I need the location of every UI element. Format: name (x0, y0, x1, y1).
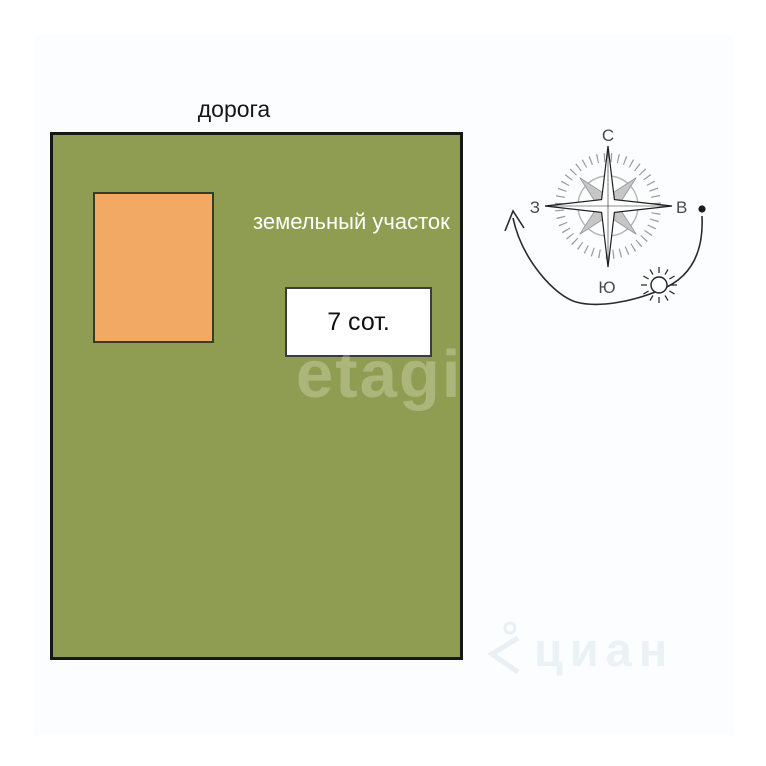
cian-watermark-text: циан (534, 626, 674, 673)
compass-label-west: З (530, 198, 540, 217)
compass-label-south: Ю (598, 278, 615, 297)
sun-icon (641, 267, 677, 303)
cian-logo-icon (482, 620, 524, 678)
compass-label-north: С (602, 126, 614, 145)
land-plot: земельный участок 7 сот. etagi (50, 132, 463, 660)
etagi-watermark: etagi (296, 341, 462, 408)
compass-main-points (545, 146, 672, 267)
compass-label-east: В (676, 198, 687, 217)
plot-label: земельный участок (253, 209, 453, 235)
sun-path-start-dot (698, 205, 705, 212)
site-plan-canvas: дорога земельный участок 7 сот. etagi С … (0, 0, 766, 766)
building-footprint (93, 192, 214, 343)
area-label: 7 сот. (327, 308, 390, 337)
road-label: дорога (158, 96, 310, 123)
compass-rose-icon: С В Ю З (480, 110, 766, 330)
cian-watermark: циан (482, 620, 674, 678)
